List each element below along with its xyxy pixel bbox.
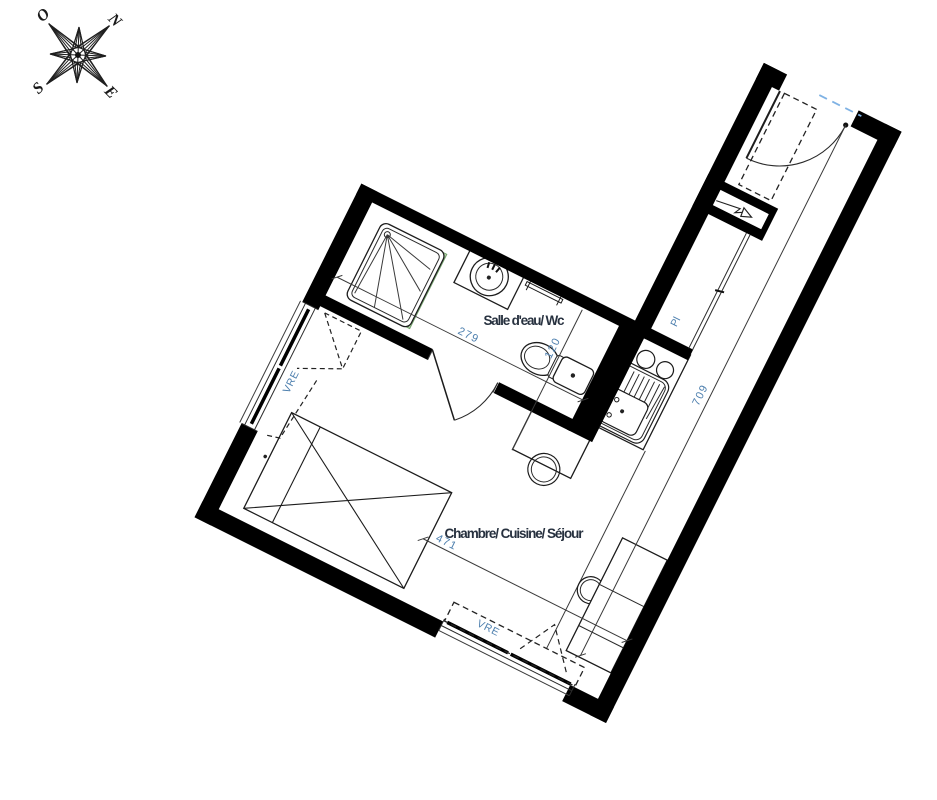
svg-text:Chambre/ Cuisine/ Séjour: Chambre/ Cuisine/ Séjour <box>445 526 585 541</box>
svg-text:Salle d'eau/ Wc: Salle d'eau/ Wc <box>484 313 565 328</box>
